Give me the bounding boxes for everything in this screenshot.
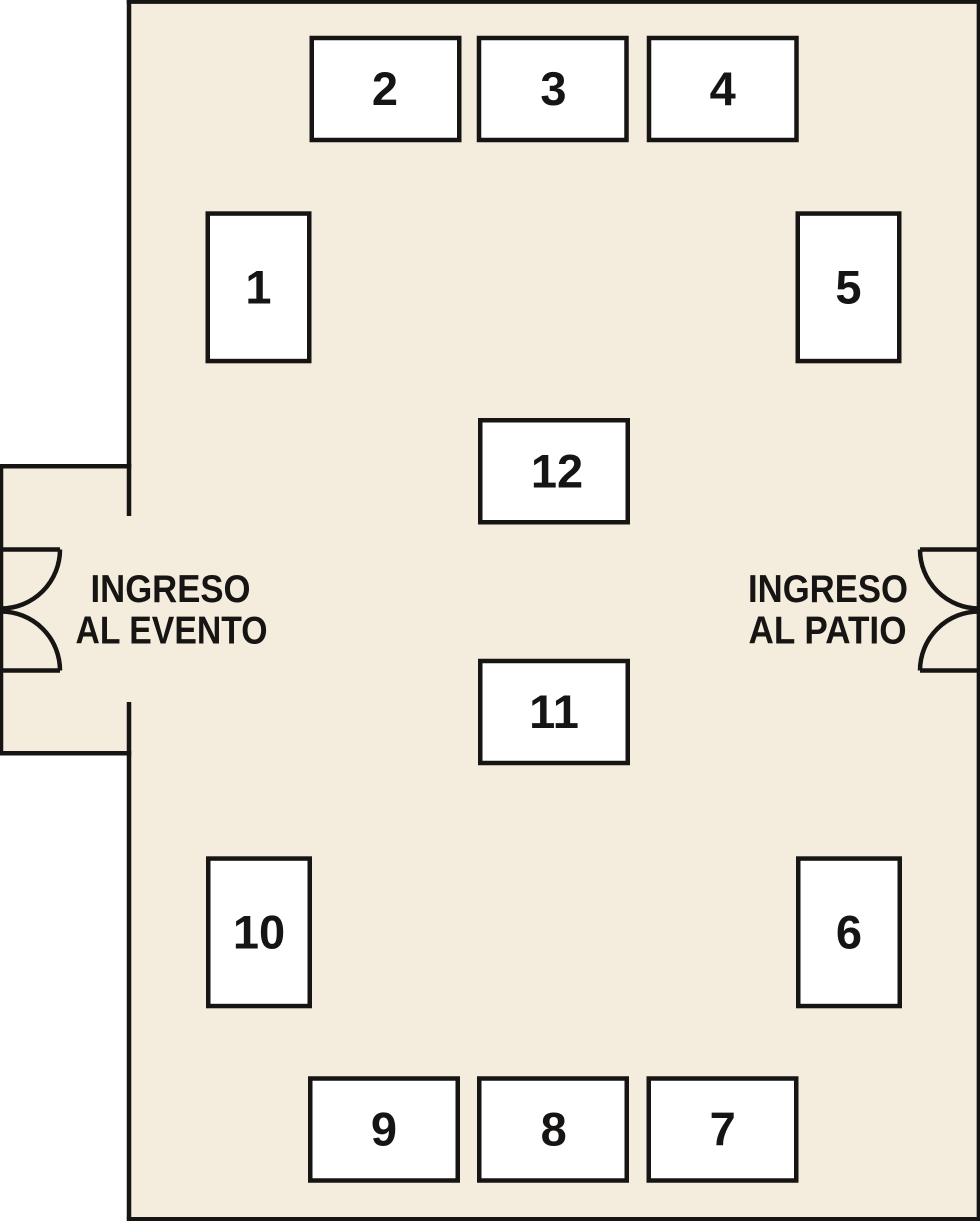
svg-text:2: 2 — [372, 62, 398, 115]
svg-text:4: 4 — [710, 62, 736, 115]
svg-text:10: 10 — [233, 905, 285, 958]
svg-text:9: 9 — [371, 1103, 397, 1156]
svg-text:AL EVENTO: AL EVENTO — [76, 610, 268, 653]
svg-text:AL PATIO: AL PATIO — [749, 610, 907, 653]
svg-text:8: 8 — [541, 1103, 567, 1156]
svg-text:7: 7 — [710, 1103, 736, 1156]
svg-text:5: 5 — [835, 260, 861, 313]
svg-text:INGRESO: INGRESO — [748, 568, 908, 611]
svg-text:1: 1 — [245, 260, 271, 313]
svg-text:12: 12 — [531, 444, 583, 497]
svg-text:3: 3 — [540, 62, 566, 115]
svg-text:INGRESO: INGRESO — [91, 568, 251, 611]
svg-text:11: 11 — [529, 685, 579, 738]
svg-text:6: 6 — [836, 905, 862, 958]
